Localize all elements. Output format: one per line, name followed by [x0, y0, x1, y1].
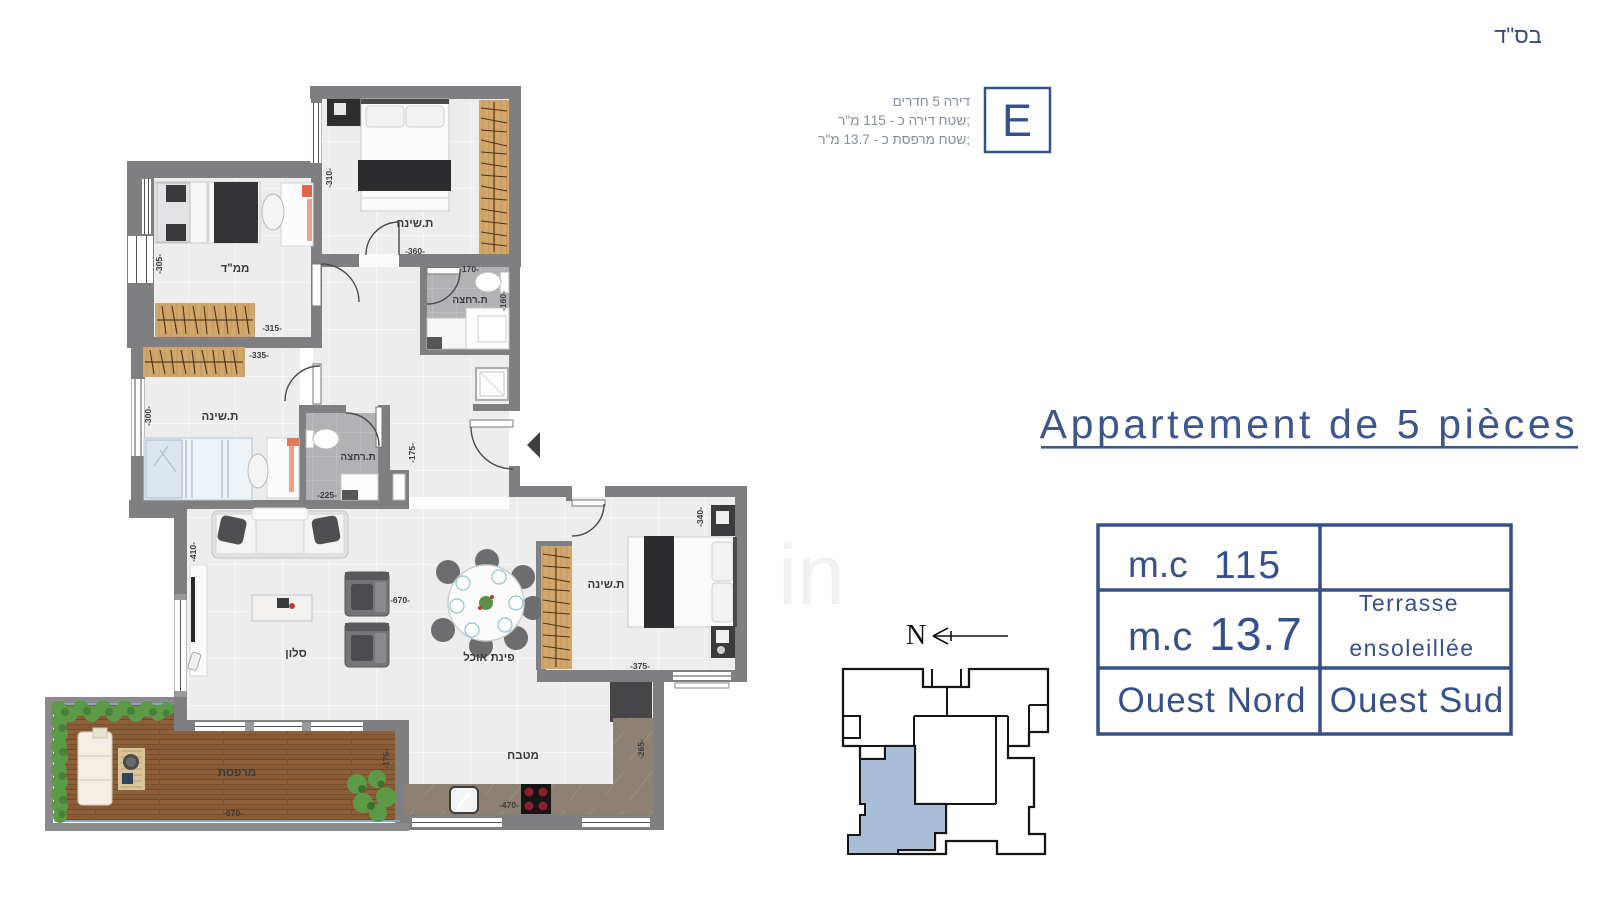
svg-text:Appartement de 5 pièces: Appartement de 5 pièces	[1040, 401, 1579, 447]
svg-text:-670-: -670-	[223, 808, 243, 818]
svg-text:שטח דירה כ - 115 מ"ר;: שטח דירה כ - 115 מ"ר;	[838, 113, 970, 128]
svg-text:-225-: -225-	[317, 490, 337, 500]
svg-text:115: 115	[1214, 544, 1282, 587]
svg-text:שטח מרפסת כ - 13.7 מ"ר;: שטח מרפסת כ - 13.7 מ"ר;	[818, 132, 970, 147]
svg-text:-300-: -300-	[143, 406, 153, 426]
svg-text:-670-: -670-	[390, 595, 410, 605]
svg-text:-315-: -315-	[262, 323, 282, 333]
svg-text:דירה 5 חדרים: דירה 5 חדרים	[893, 94, 971, 109]
svg-text:-175-: -175-	[381, 749, 391, 769]
svg-text:-360-: -360-	[405, 246, 425, 256]
svg-text:ממ"ד: ממ"ד	[221, 263, 250, 275]
svg-text:-265-: -265-	[636, 739, 646, 759]
svg-text:-340-: -340-	[695, 507, 705, 527]
svg-text:E: E	[1002, 95, 1032, 146]
svg-text:-305-: -305-	[154, 254, 164, 274]
svg-text:סלון: סלון	[285, 647, 307, 660]
svg-text:-310-: -310-	[324, 168, 334, 188]
svg-text:מרפסת: מרפסת	[218, 767, 256, 779]
svg-text:13.7: 13.7	[1209, 608, 1303, 660]
svg-text:-175-: -175-	[407, 443, 417, 463]
svg-text:ת.שינה: ת.שינה	[588, 579, 625, 591]
svg-text:m.c: m.c	[1128, 544, 1188, 585]
svg-text:-375-: -375-	[630, 661, 650, 671]
svg-text:N: N	[906, 620, 926, 651]
svg-text:ensoleillée: ensoleillée	[1349, 635, 1474, 661]
svg-text:ת.שינה: ת.שינה	[397, 218, 434, 230]
svg-text:-470-: -470-	[499, 800, 519, 810]
svg-text:-335-: -335-	[249, 350, 269, 360]
svg-text:ת.רחצה: ת.רחצה	[452, 295, 487, 306]
svg-text:Ouest Sud: Ouest Sud	[1330, 681, 1504, 720]
svg-text:ת.שינה: ת.שינה	[202, 411, 239, 423]
svg-text:-410-: -410-	[188, 542, 198, 562]
svg-text:ת.רחצה: ת.רחצה	[340, 452, 375, 463]
svg-text:-160-: -160-	[498, 291, 508, 311]
svg-text:Ouest Nord: Ouest Nord	[1118, 681, 1307, 720]
svg-text:in: in	[778, 527, 845, 623]
svg-text:-170-: -170-	[459, 264, 479, 274]
svg-text:Terrasse: Terrasse	[1359, 590, 1459, 616]
svg-text:m.c: m.c	[1128, 615, 1192, 659]
svg-text:פינת אוכל: פינת אוכל	[463, 651, 514, 664]
svg-text:בס"ד: בס"ד	[1494, 23, 1542, 48]
svg-text:מטבח: מטבח	[507, 750, 539, 762]
